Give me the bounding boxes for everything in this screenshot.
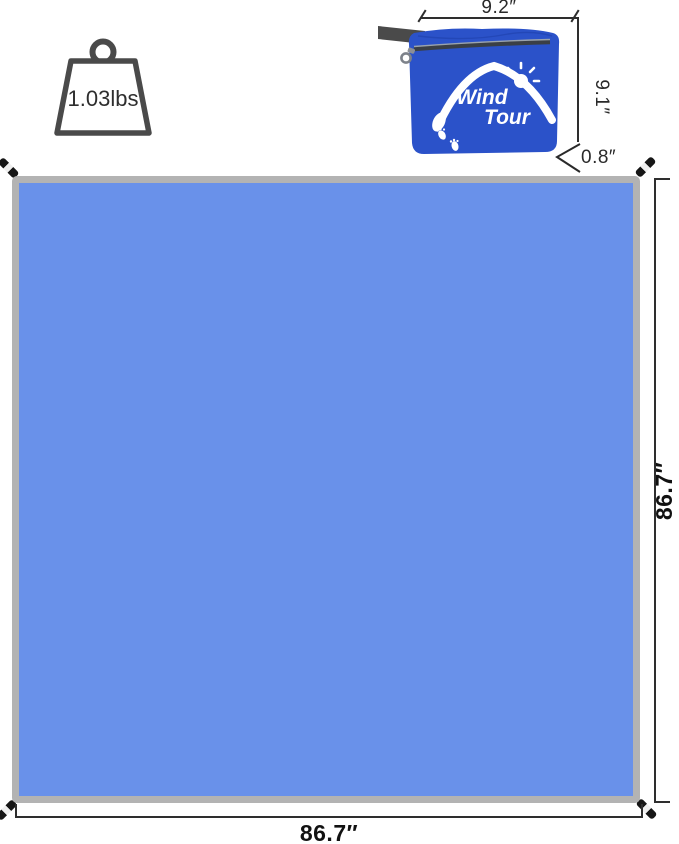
tarp-width-label: 86.7″	[15, 820, 643, 844]
product-dimension-diagram: 1.03lbs 9.2″ 9.1″ 0.8″	[0, 0, 679, 844]
pouch-width-label: 9.2″	[420, 0, 578, 19]
pouch-height-label: 9.1″	[590, 62, 612, 132]
zipper-pull-icon	[401, 53, 410, 62]
weight-label: 1.03lbs	[68, 86, 139, 111]
storage-pouch: Wind Tour	[378, 20, 578, 162]
tarp-width-dim-line	[15, 816, 643, 818]
tarp-height-cap-top	[654, 178, 670, 180]
pouch-depth-label: 0.8″	[581, 147, 616, 169]
weight-icon: 1.03lbs	[48, 36, 160, 142]
brand-name-tour: Tour	[484, 106, 532, 129]
tarp-width-cap-right	[641, 804, 643, 817]
tarp-width-cap-left	[15, 804, 17, 817]
tarp-stake-top-right	[635, 156, 657, 178]
tarp	[12, 176, 640, 803]
tarp-height-label: 86.7″	[651, 453, 677, 529]
tarp-height-cap-bottom	[654, 801, 670, 803]
